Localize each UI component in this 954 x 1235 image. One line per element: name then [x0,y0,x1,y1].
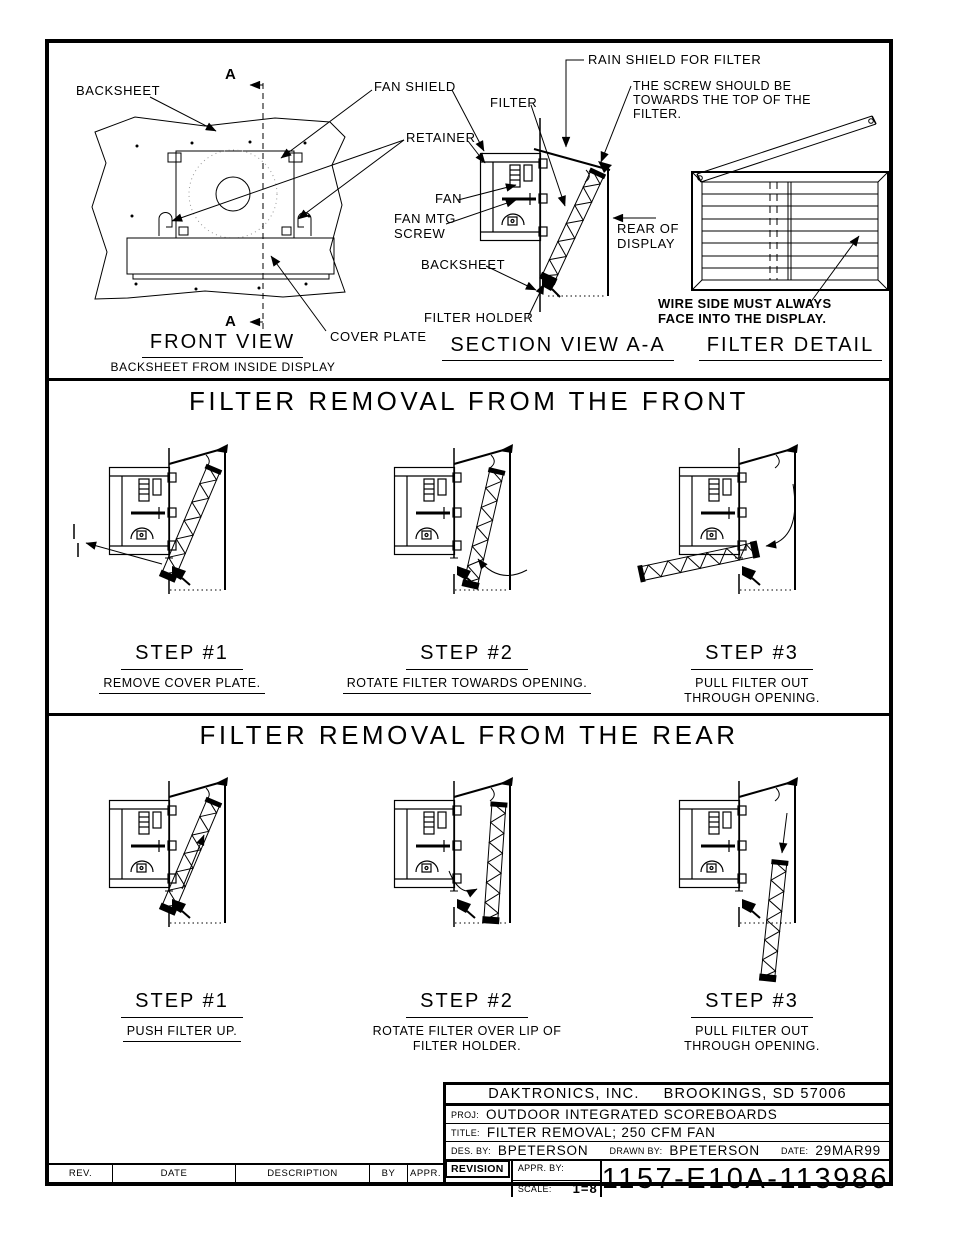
title-block: DAKTRONICS, INC. BROOKINGS, SD 57006 PRO… [443,1082,889,1182]
appr-by-label: APPR. BY: [513,1161,600,1181]
rear-step2-desc: ROTATE FILTER OVER LIP OF FILTER HOLDER. [337,1024,597,1054]
title-block-designer-row: DES. BY: BPETERSON DRAWN BY: BPETERSON D… [446,1142,889,1161]
front-view-title: FRONT VIEW [115,331,330,358]
cover-plate-label: COVER PLATE [330,330,427,344]
title-block-company-row: DAKTRONICS, INC. BROOKINGS, SD 57006 [446,1085,889,1106]
backsheet-holes [131,141,311,291]
drawing-sheet: BACKSHEET A A FAN SHIELD RETAINER FILTER… [0,0,954,1235]
revision-strip: REV. DATE DESCRIPTION BY APPR. [49,1163,443,1182]
rear-step1-drawing [109,777,228,927]
date-label: DATE: [781,1146,808,1156]
front-view-drawing [92,83,345,331]
front-step1-drawing [74,444,228,594]
appr-header: APPR. [408,1165,443,1182]
fan-shield-label: FAN SHIELD [374,80,456,94]
retainer-label: RETAINER [406,131,476,145]
cover-plate-shape [127,238,334,274]
des-by-value: BPETERSON [498,1143,588,1158]
scale-label: SCALE: [518,1184,552,1194]
rear-step3-label: STEP #3 [632,990,872,1018]
drawn-by-label: DRAWN BY: [610,1146,663,1156]
rev-header: REV. [49,1165,113,1182]
description-header: DESCRIPTION [236,1165,370,1182]
rear-step2-label: STEP #2 [347,990,587,1018]
backsheet-label: BACKSHEET [76,84,160,98]
title-block-proj-row: PROJ: OUTDOOR INTEGRATED SCOREBOARDS [446,1106,889,1124]
front-step2-label: STEP #2 [347,642,587,670]
screw-note-line3: FILTER. [633,107,681,122]
rear-step1-label: STEP #1 [62,990,302,1018]
filter-label: FILTER [490,96,537,110]
title-value: FILTER REMOVAL; 250 CFM FAN [487,1125,716,1140]
rear-step2-drawing [394,777,513,927]
section-view-drawing [480,118,612,312]
rain-shield-label: RAIN SHIELD FOR FILTER [588,53,761,67]
filter-detail-title: FILTER DETAIL [698,334,883,361]
appr-scale-cell: APPR. BY: SCALE: 1=8 [513,1161,602,1197]
drawing-number: 1157-E10A-113986 [602,1161,889,1197]
fan-mtg-label-line2: SCREW [394,227,445,241]
section-marker-a-bottom: A [225,313,236,330]
des-by-label: DES. BY: [451,1146,491,1156]
rear-step1-desc: PUSH FILTER UP. [52,1024,312,1042]
company-city: BROOKINGS, SD 57006 [664,1086,847,1102]
wire-note-line2: FACE INTO THE DISPLAY. [658,312,826,326]
rear-step3-drawing [679,777,798,982]
rear-removal-title: FILTER REMOVAL FROM THE REAR [45,720,893,751]
proj-label: PROJ: [451,1110,479,1120]
wire-note-line1: WIRE SIDE MUST ALWAYS [658,297,832,311]
front-step3-drawing [637,444,798,594]
front-step3-label: STEP #3 [632,642,872,670]
fan-label: FAN [435,192,462,206]
front-removal-title: FILTER REMOVAL FROM THE FRONT [45,386,893,417]
rear-of-display-line1: REAR OF [617,222,679,236]
by-header: BY [370,1165,408,1182]
backsheet-section-label: BACKSHEET [421,258,505,272]
company-name: DAKTRONICS, INC. [488,1086,639,1102]
front-step3-desc: PULL FILTER OUT THROUGH OPENING. [622,676,882,706]
rear-step3-desc: PULL FILTER OUT THROUGH OPENING. [622,1024,882,1054]
title-label: TITLE: [451,1128,480,1138]
screw-note-line1: THE SCREW SHOULD BE [633,79,791,94]
title-block-bottom-row: REVISION APPR. BY: SCALE: 1=8 1157-E10A-… [446,1161,889,1197]
front-step2-drawing [394,444,527,594]
filter-detail-drawing [692,116,888,290]
section-marker-a-top: A [225,66,236,83]
retainer-left-shape [159,213,172,236]
fan-shield-shape [176,151,294,238]
scale-value: 1=8 [573,1181,598,1196]
revision-cell: REVISION [446,1161,513,1197]
date-header: DATE [113,1165,236,1182]
revision-label: REVISION [445,1160,510,1178]
front-step2-desc: ROTATE FILTER TOWARDS OPENING. [337,676,597,694]
title-block-title-row: TITLE: FILTER REMOVAL; 250 CFM FAN [446,1124,889,1142]
screw-note-line2: TOWARDS THE TOP OF THE [633,93,811,108]
proj-value: OUTDOOR INTEGRATED SCOREBOARDS [486,1107,778,1122]
filter-holder-label: FILTER HOLDER [424,311,533,325]
front-step1-label: STEP #1 [62,642,302,670]
section-view-title: SECTION VIEW A-A [438,334,678,361]
front-step1-desc: REMOVE COVER PLATE. [52,676,312,694]
front-view-subtitle: BACKSHEET FROM INSIDE DISPLAY [92,360,354,374]
fan-mtg-label-line1: FAN MTG [394,212,456,226]
date-value: 29MAR99 [815,1143,881,1158]
drawn-by-value: BPETERSON [669,1143,759,1158]
rear-of-display-line2: DISPLAY [617,237,675,251]
filter-shape [539,168,606,286]
